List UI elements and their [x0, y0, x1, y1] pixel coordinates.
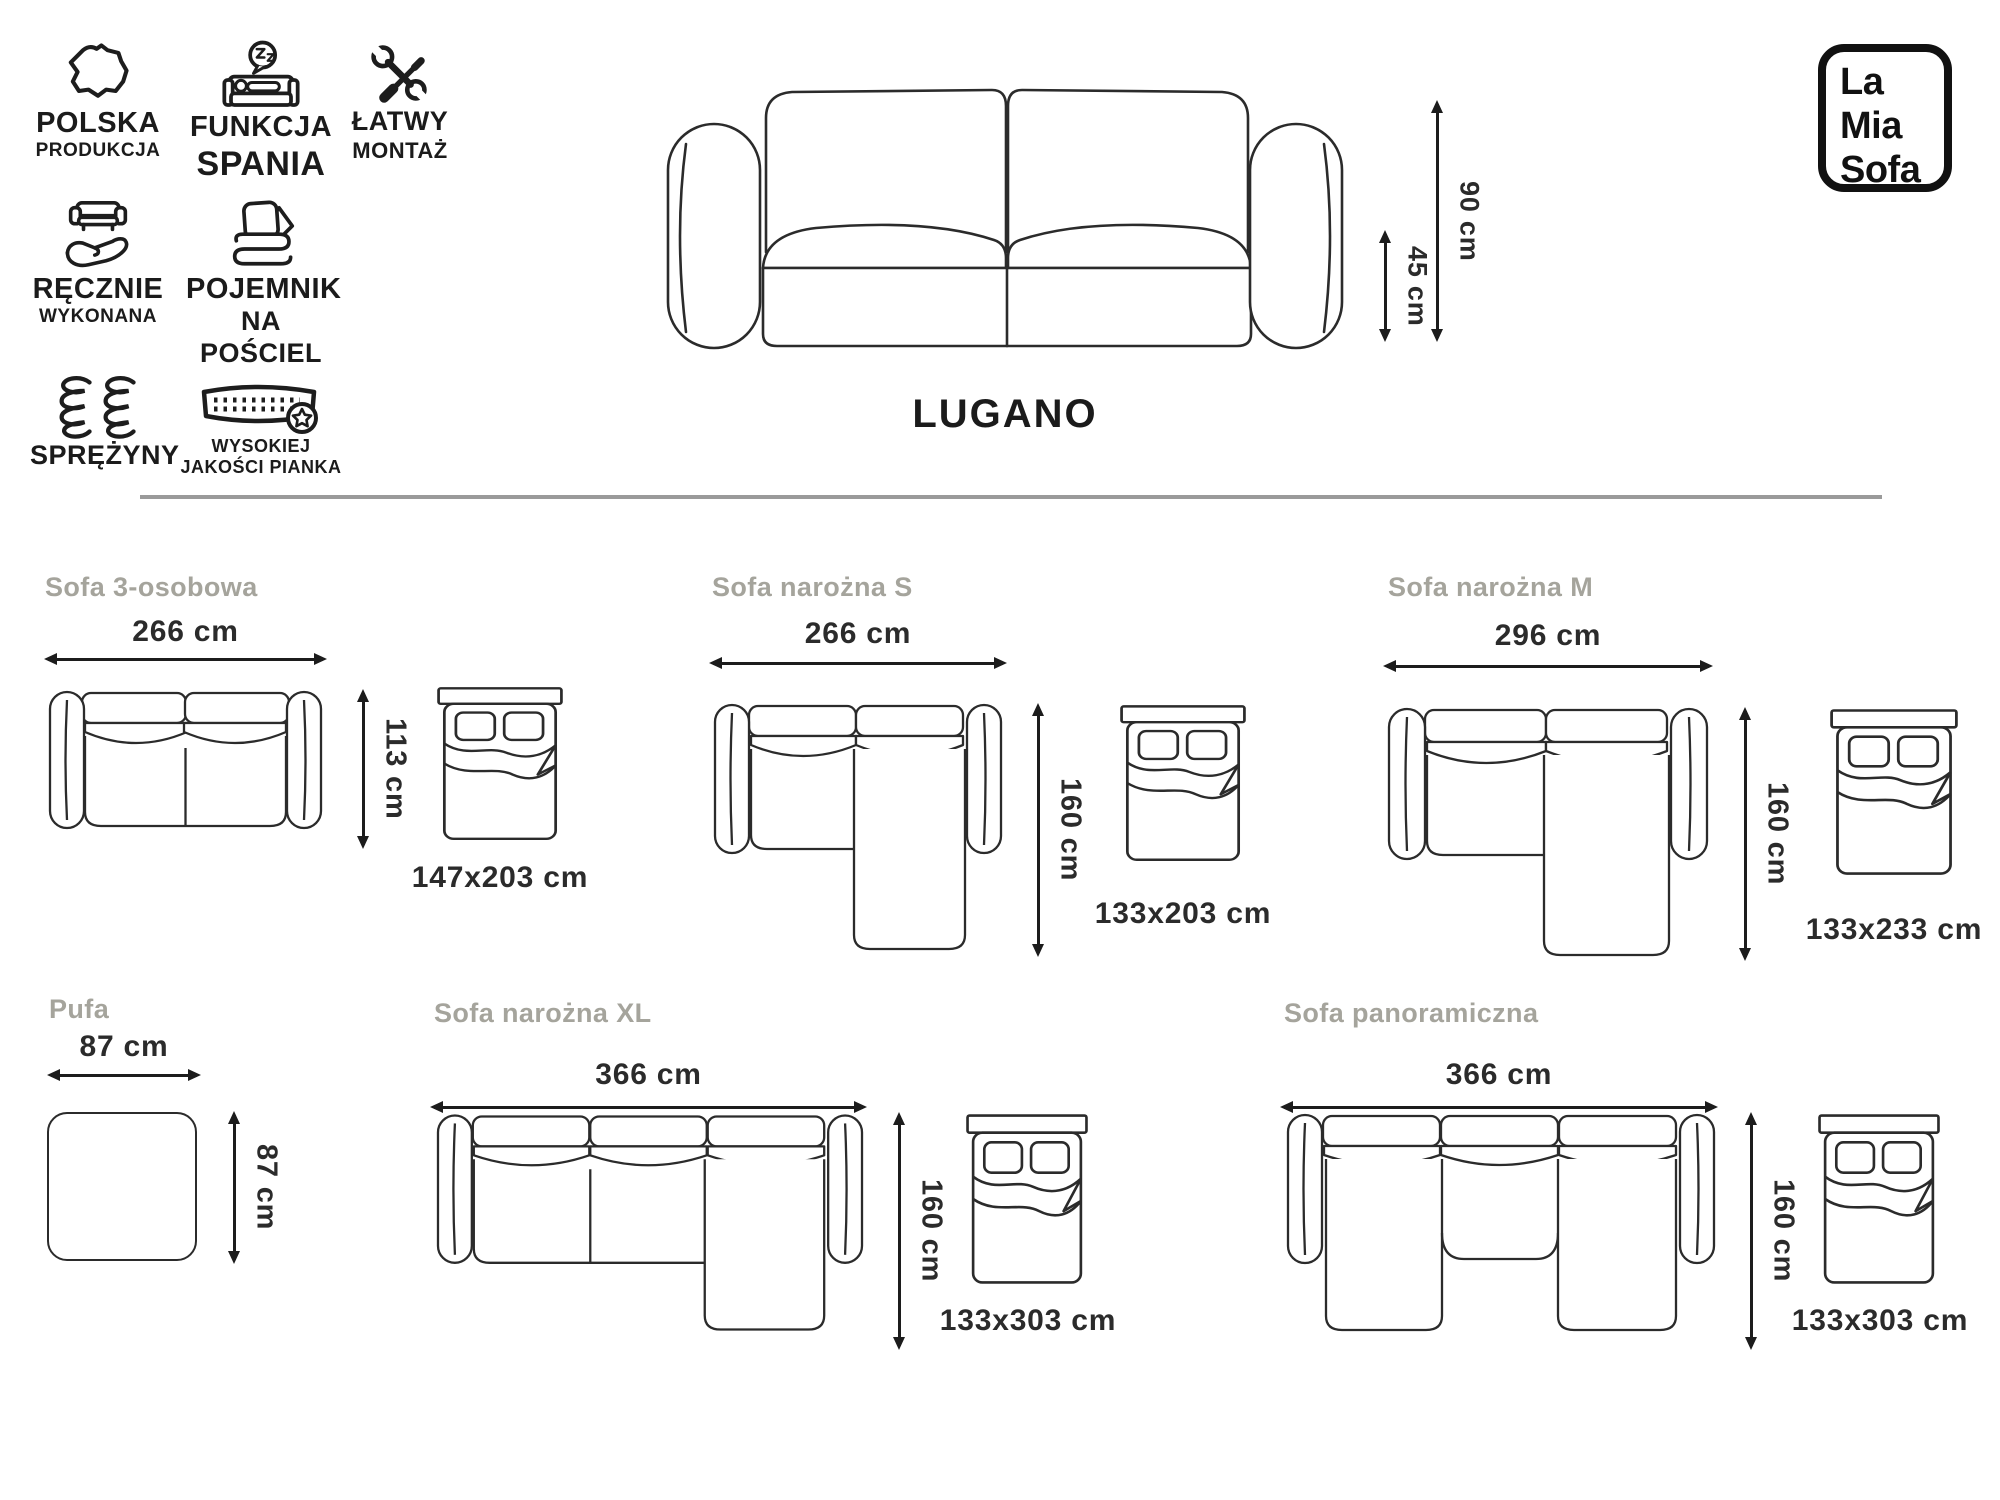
width-label: 366 cm — [1284, 1058, 1714, 1092]
overall-height-label: 90 cm — [1452, 104, 1486, 338]
width-arrow — [48, 658, 323, 661]
width-arrow — [434, 1106, 863, 1109]
feature-recznie-wykonana: RĘCZNIE WYKONANA — [30, 196, 166, 329]
depth-arrow — [1744, 711, 1747, 957]
section-sofa-narozna-m: Sofa narożna M 296 cm 160 cm 133x233 cm — [1380, 565, 2000, 965]
feature-pojemnik-na-posciel: POJEMNIK NA POŚCIEL — [186, 196, 336, 370]
bed-size-label: 133x303 cm — [920, 1304, 1136, 1338]
section-sofa-narozna-xl: Sofa narożna XL 366 cm 160 cm — [428, 988, 1148, 1358]
divider-line — [140, 495, 1882, 499]
bed-size-icon — [437, 687, 563, 842]
section-pufa: Pufa 87 cm 87 cm — [40, 988, 380, 1298]
section-title: Sofa narożna XL — [434, 998, 652, 1029]
depth-label: 87 cm — [249, 1115, 283, 1260]
bed-size-label: 147x203 cm — [392, 861, 608, 895]
feature-latwy-montaz: ŁATWY MONTAŻ — [342, 40, 458, 164]
feature-polska-produkcja: POLSKA PRODUKCJA — [30, 40, 166, 163]
width-arrow — [1284, 1106, 1714, 1109]
logo-line-2: Mia — [1840, 104, 1936, 148]
logo-line-1: La — [1840, 60, 1936, 104]
sofa-top-view — [1286, 1113, 1716, 1333]
bed-size-label: 133x303 cm — [1772, 1304, 1988, 1338]
feature-funkcja-spania: FUNKCJA SPANIA — [186, 40, 336, 184]
sofa-top-view — [48, 690, 323, 830]
depth-arrow — [233, 1115, 236, 1260]
section-title: Sofa panoramiczna — [1284, 998, 1538, 1029]
section-sofa-narozna-s: Sofa narożna S 266 cm 160 cm 133x203 cm — [705, 565, 1325, 965]
bedding-storage-icon — [186, 196, 336, 272]
width-arrow — [51, 1074, 197, 1077]
bed-size-icon — [966, 1114, 1088, 1286]
sofa-top-view — [436, 1113, 864, 1333]
bed-size-label: 133x233 cm — [1786, 913, 2000, 947]
depth-arrow — [898, 1116, 901, 1346]
quality-foam-icon — [178, 374, 344, 436]
feature-wysokiej-jakosci-pianka: WYSOKIEJ JAKOŚCI PIANKA — [178, 374, 344, 478]
width-arrow — [1387, 665, 1709, 668]
section-sofa-3-osobowa: Sofa 3-osobowa 266 cm 113 cm 147x203 cm — [40, 565, 660, 945]
sofa-top-view — [1387, 707, 1709, 959]
pufa-top-view — [47, 1112, 197, 1261]
width-label: 366 cm — [434, 1058, 863, 1092]
width-arrow — [713, 662, 1003, 665]
width-label: 266 cm — [48, 615, 323, 649]
section-title: Pufa — [49, 994, 109, 1025]
sofa-top-view — [713, 703, 1003, 953]
overall-height-arrow — [1436, 104, 1439, 338]
bed-size-label: 133x203 cm — [1075, 897, 1291, 931]
depth-arrow — [1750, 1116, 1753, 1346]
seat-height-arrow — [1384, 234, 1387, 338]
handmade-icon — [30, 196, 166, 272]
seat-height-label: 45 cm — [1400, 234, 1434, 338]
width-label: 87 cm — [51, 1030, 197, 1064]
depth-arrow — [1037, 707, 1040, 953]
product-spec-sheet: POLSKA PRODUKCJA FUNKCJA SPANIA — [0, 0, 2000, 1500]
sleep-function-icon — [186, 40, 336, 110]
section-title: Sofa 3-osobowa — [45, 572, 258, 603]
width-label: 266 cm — [713, 617, 1003, 651]
product-name: LUGANO — [640, 392, 1370, 437]
bed-size-icon — [1120, 705, 1246, 863]
depth-arrow — [362, 693, 365, 845]
width-label: 296 cm — [1387, 619, 1709, 653]
feature-sprezyny: SPRĘŻYNY — [30, 370, 166, 472]
hero-sofa-drawing — [640, 62, 1370, 352]
bed-size-icon — [1830, 709, 1958, 877]
bed-size-icon — [1818, 1114, 1940, 1286]
section-sofa-panoramiczna: Sofa panoramiczna 366 cm 160 cm — [1278, 988, 1998, 1358]
section-title: Sofa narożna S — [712, 572, 913, 603]
springs-icon — [30, 370, 166, 440]
section-title: Sofa narożna M — [1388, 572, 1593, 603]
logo-line-3: Sofa — [1840, 148, 1936, 192]
tools-icon — [342, 40, 458, 106]
brand-logo: La Mia Sofa — [1818, 44, 1952, 192]
depth-label: 113 cm — [378, 693, 412, 845]
poland-map-icon — [30, 40, 166, 106]
